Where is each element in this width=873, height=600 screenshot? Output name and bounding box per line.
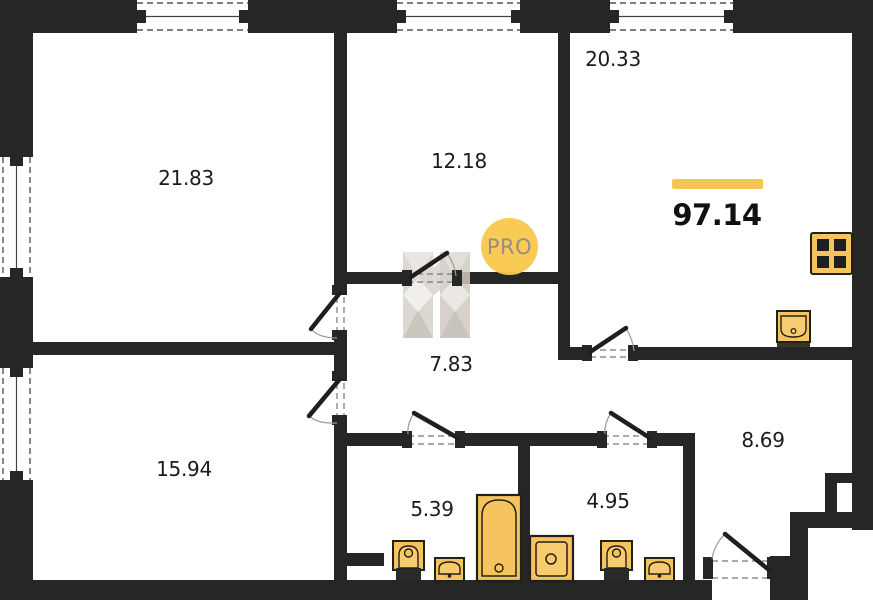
- door: [309, 371, 347, 425]
- room-area-label-living: 21.83: [158, 166, 214, 190]
- bathtub-icon: [477, 495, 521, 581]
- room-area-label-hallway: 7.83: [429, 352, 472, 376]
- window: [397, 3, 520, 30]
- toilet-icon: [601, 541, 632, 581]
- pro-watermark-label: PRO: [487, 235, 532, 259]
- toilet-icon: [393, 541, 424, 581]
- window: [610, 3, 733, 30]
- house-logo-watermark-icon: [403, 252, 470, 338]
- doors: [309, 253, 777, 579]
- window: [3, 368, 30, 480]
- total-area-label: 97.14: [672, 198, 761, 232]
- room-area-label-bathroom: 5.39: [410, 497, 453, 521]
- washing-machine-icon: [530, 536, 573, 581]
- window: [3, 157, 30, 277]
- sink-icon: [435, 558, 464, 581]
- floor-plan-page: 21.83 12.18 20.33 7.83 15.94 5.39 4.95 8…: [0, 0, 873, 600]
- sink-icon: [645, 558, 674, 581]
- room-area-label-bathroom2: 4.95: [586, 489, 629, 513]
- door: [582, 328, 638, 361]
- total-area-accent-bar: [672, 179, 763, 189]
- room-area-label-entrance: 8.69: [741, 428, 784, 452]
- room-area-label-kitchen: 20.33: [585, 47, 641, 71]
- pro-watermark-badge: PRO: [481, 218, 538, 275]
- door: [311, 285, 347, 340]
- stove-icon: [811, 233, 852, 274]
- kitchen-sink-icon: [777, 311, 810, 347]
- door: [597, 413, 657, 448]
- room-area-label-bedroom2: 15.94: [156, 457, 212, 481]
- window: [137, 3, 248, 30]
- windows: [3, 3, 733, 480]
- door: [402, 413, 465, 448]
- entrance-door: [703, 534, 777, 579]
- room-area-label-bedroom: 12.18: [431, 149, 487, 173]
